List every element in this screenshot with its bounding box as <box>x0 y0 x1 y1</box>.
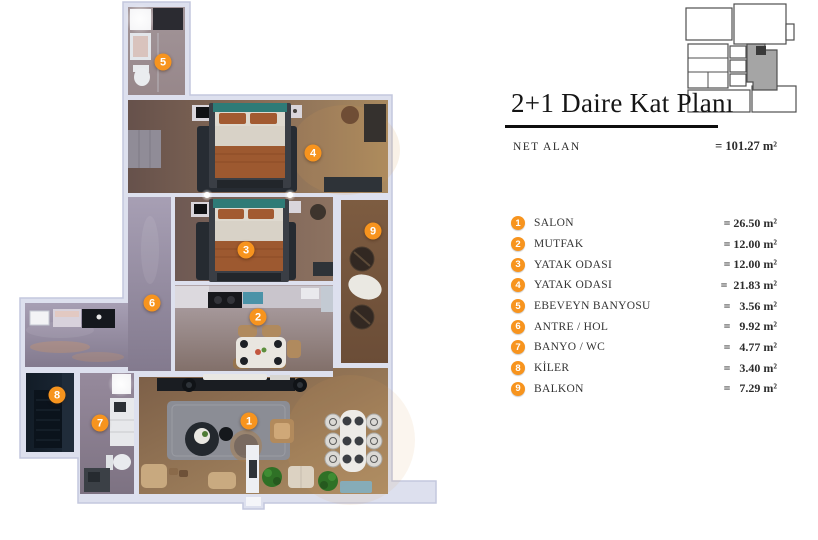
sink <box>301 288 319 299</box>
legend-room-label: EBEVEYN BANYOSU <box>534 300 724 312</box>
floor-plan-graphic <box>0 0 460 540</box>
cooktop <box>208 292 242 308</box>
title-underline <box>505 125 718 128</box>
legend-area-value: = 9.92 m² <box>724 319 777 334</box>
net-area-row: NET ALAN = 101.27 m² <box>513 139 777 154</box>
light-glow <box>72 352 124 362</box>
wardrobe-dark <box>364 104 386 142</box>
apartment-floor-plan: 1 2 3 4 5 6 7 8 9 <box>0 0 460 540</box>
legend-number-badge: 7 <box>511 340 525 354</box>
legend-area-value: = 7.29 m² <box>724 381 777 396</box>
dresser <box>324 177 382 192</box>
plan-marker-balcony: 9 <box>365 223 382 240</box>
legend-row-salon: 1 SALON = 26.50 m² <box>511 213 777 234</box>
legend-room-label: SALON <box>534 217 724 229</box>
legend-row-mutfak: 2 MUTFAK = 12.00 m² <box>511 234 777 255</box>
room-legend: 1 SALON = 26.50 m² 2 MUTFAK = 12.00 m² 3… <box>511 213 777 399</box>
legend-number-badge: 2 <box>511 237 525 251</box>
pouf <box>341 106 359 124</box>
light-glow <box>30 341 90 353</box>
chair <box>262 325 281 337</box>
shower-light <box>125 4 155 34</box>
legend-area-value: = 12.00 m² <box>724 237 777 252</box>
legend-number-badge: 5 <box>511 299 525 313</box>
chair <box>238 325 257 337</box>
chair <box>287 340 301 358</box>
legend-area-value: = 21.83 m² <box>721 278 777 293</box>
chair <box>310 204 326 220</box>
legend-row-antre-hol: 6 ANTRE / HOL = 9.92 m² <box>511 316 777 337</box>
plan-marker-storage: 8 <box>49 387 66 404</box>
legend-room-label: BALKON <box>534 383 724 395</box>
legend-room-label: BANYO / WC <box>534 341 724 353</box>
doormat <box>340 481 372 493</box>
nightstand <box>288 201 301 213</box>
legend-number-badge: 3 <box>511 258 525 272</box>
door-light <box>204 192 210 198</box>
legend-room-label: YATAK ODASI <box>534 259 724 271</box>
fridge <box>321 286 333 312</box>
legend-area-value: = 4.77 m² <box>724 340 777 355</box>
legend-room-label: YATAK ODASI <box>534 279 721 291</box>
toilet-icon <box>113 454 131 470</box>
double-bed-icon <box>209 199 289 282</box>
dining-table-set <box>325 410 382 472</box>
legend-row-banyo-wc: 7 BANYO / WC = 4.77 m² <box>511 337 777 358</box>
legend-number-badge: 8 <box>511 361 525 375</box>
floor-plan-page: 1 2 3 4 5 6 7 8 9 2+1 Daire Kat Pla <box>0 0 818 540</box>
legend-row-balkon: 9 BALKON = 7.29 m² <box>511 379 777 400</box>
legend-row-kiler: 8 KİLER = 3.40 m² <box>511 358 777 379</box>
net-area-label: NET ALAN <box>513 141 581 153</box>
door-light <box>287 192 293 198</box>
plan-marker-master-bathroom: 5 <box>155 54 172 71</box>
page-title: 2+1 Daire Kat Planı <box>511 88 734 119</box>
plan-marker-bedroom4: 4 <box>305 145 322 162</box>
legend-row-yatak-odasi-4: 4 YATAK ODASI = 21.83 m² <box>511 275 777 296</box>
dresser <box>313 262 333 276</box>
double-bed-icon <box>209 103 291 188</box>
plan-marker-bedroom3: 3 <box>238 242 255 259</box>
legend-area-value: = 26.50 m² <box>724 216 777 231</box>
wardrobe <box>128 130 161 168</box>
legend-number-badge: 9 <box>511 382 525 396</box>
wall-frame <box>30 311 49 325</box>
legend-area-value: = 3.56 m² <box>724 299 777 314</box>
plan-marker-hall: 6 <box>144 295 161 312</box>
dish-rack <box>243 292 263 304</box>
legend-area-value: = 3.40 m² <box>724 361 777 376</box>
bath-counter <box>153 8 183 30</box>
plan-marker-salon: 1 <box>241 413 258 430</box>
plan-marker-wc: 7 <box>92 415 109 432</box>
toilet-icon <box>134 68 150 86</box>
legend-room-label: KİLER <box>534 362 724 374</box>
entrance-step <box>246 497 261 506</box>
legend-row-ebeveyn-banyosu: 5 EBEVEYN BANYOSU = 3.56 m² <box>511 296 777 317</box>
legend-number-badge: 6 <box>511 320 525 334</box>
plan-marker-kitchen: 2 <box>250 309 267 326</box>
legend-area-value: = 12.00 m² <box>724 257 777 272</box>
keyplan-core <box>756 46 766 55</box>
skylight <box>108 371 134 397</box>
legend-room-label: MUTFAK <box>534 238 724 250</box>
legend-number-badge: 4 <box>511 278 525 292</box>
plant-icon <box>262 467 282 487</box>
lounge-chair <box>208 472 236 489</box>
legend-row-yatak-odasi-3: 3 YATAK ODASI = 12.00 m² <box>511 254 777 275</box>
net-area-value: = 101.27 m² <box>715 139 777 154</box>
legend-number-badge: 1 <box>511 216 525 230</box>
plant-icon <box>318 471 338 491</box>
legend-room-label: ANTRE / HOL <box>534 321 724 333</box>
